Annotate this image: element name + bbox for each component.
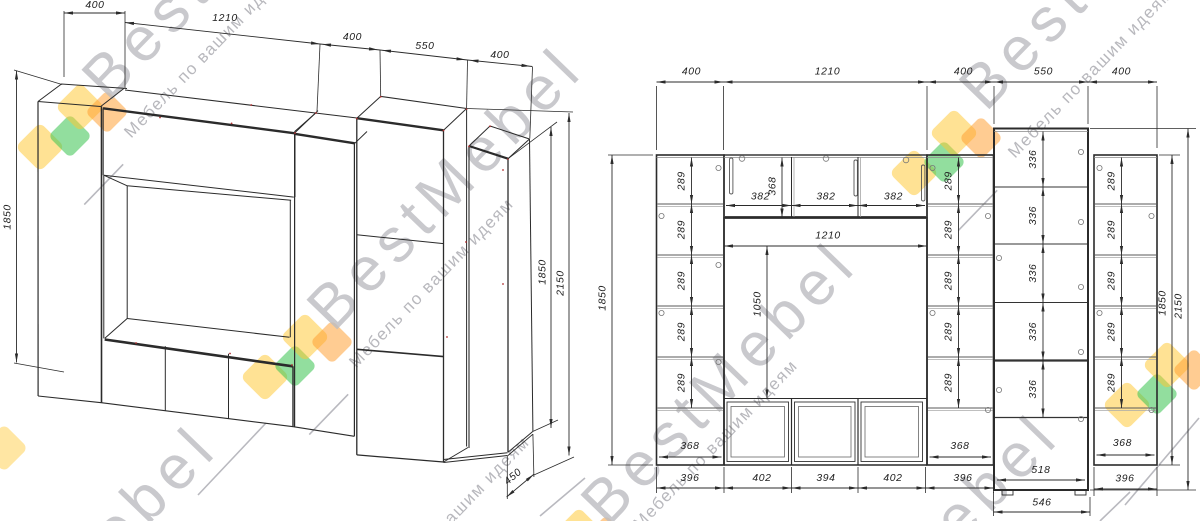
svg-text:1210: 1210 (815, 67, 841, 78)
svg-text:1210: 1210 (815, 231, 841, 242)
svg-text:289: 289 (944, 373, 955, 393)
svg-text:402: 402 (883, 473, 902, 484)
svg-text:336: 336 (1028, 206, 1039, 225)
svg-text:289: 289 (677, 171, 688, 191)
svg-text:2150: 2150 (556, 270, 567, 297)
svg-text:400: 400 (490, 50, 509, 61)
svg-text:289: 289 (1107, 171, 1118, 191)
svg-text:396: 396 (680, 473, 699, 484)
svg-text:396: 396 (1115, 474, 1134, 485)
svg-text:336: 336 (1028, 264, 1039, 283)
svg-text:400: 400 (85, 0, 104, 11)
svg-text:400: 400 (682, 67, 701, 78)
svg-text:368: 368 (950, 441, 969, 452)
svg-text:289: 289 (1107, 373, 1118, 393)
svg-text:289: 289 (677, 322, 688, 342)
svg-text:1210: 1210 (212, 13, 238, 24)
svg-text:400: 400 (1112, 67, 1131, 78)
svg-text:2150: 2150 (1174, 293, 1185, 320)
svg-text:289: 289 (1107, 271, 1118, 291)
svg-text:336: 336 (1028, 322, 1039, 341)
svg-text:289: 289 (677, 373, 688, 393)
svg-text:289: 289 (1107, 322, 1118, 342)
svg-text:289: 289 (944, 271, 955, 291)
svg-text:550: 550 (415, 41, 434, 52)
svg-text:289: 289 (1107, 220, 1118, 240)
svg-text:396: 396 (953, 473, 972, 484)
svg-text:400: 400 (343, 32, 362, 43)
svg-text:1850: 1850 (1158, 290, 1169, 316)
svg-text:402: 402 (752, 473, 771, 484)
svg-text:289: 289 (944, 220, 955, 240)
svg-text:400: 400 (954, 67, 973, 78)
svg-text:289: 289 (944, 171, 955, 191)
svg-text:289: 289 (677, 271, 688, 291)
svg-text:336: 336 (1028, 150, 1039, 169)
svg-text:394: 394 (816, 473, 835, 484)
svg-text:368: 368 (680, 441, 699, 452)
svg-text:382: 382 (884, 192, 903, 203)
svg-text:368: 368 (1113, 438, 1132, 449)
svg-text:336: 336 (1028, 379, 1039, 398)
svg-text:518: 518 (1031, 465, 1050, 476)
svg-text:1850: 1850 (598, 285, 609, 311)
svg-text:1850: 1850 (3, 204, 14, 230)
svg-text:382: 382 (816, 192, 835, 203)
svg-text:550: 550 (1034, 67, 1053, 78)
svg-text:1050: 1050 (753, 291, 764, 317)
svg-text:546: 546 (1032, 498, 1051, 509)
svg-text:289: 289 (944, 322, 955, 342)
svg-text:368: 368 (768, 176, 779, 195)
svg-text:1850: 1850 (538, 259, 549, 285)
svg-text:289: 289 (677, 220, 688, 240)
